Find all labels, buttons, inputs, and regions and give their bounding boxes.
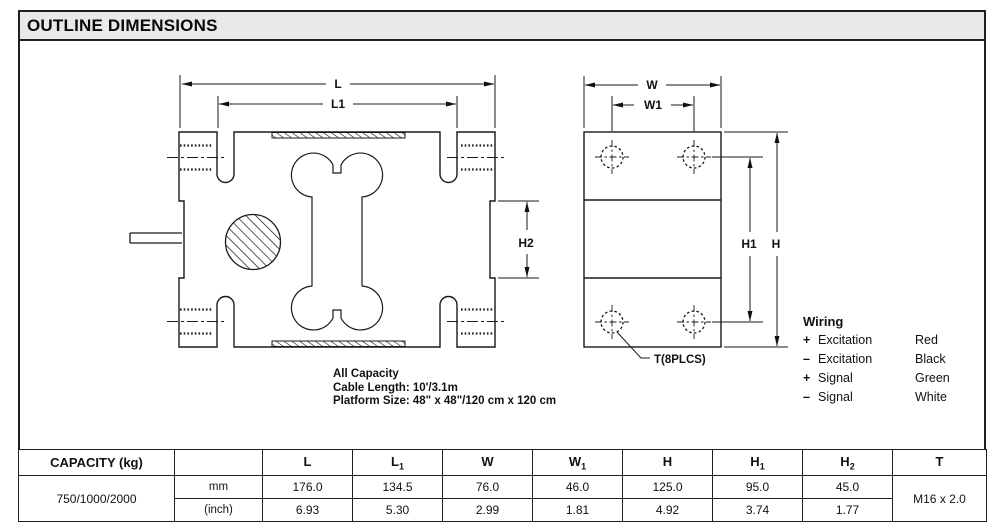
dim-label-L: L (334, 77, 341, 91)
value-cell: 134.5 (353, 476, 443, 499)
capacity-value-cell: 750/1000/2000 (19, 476, 175, 522)
table-row-mm: 750/1000/2000 mm 176.0 134.5 76.0 46.0 1… (19, 476, 987, 499)
col-header-T: T (893, 450, 987, 476)
unit-cell-inch: (inch) (175, 499, 263, 522)
top-hatch-strip (272, 133, 405, 139)
value-cell: 76.0 (443, 476, 533, 499)
wiring-sign: – (803, 350, 818, 369)
cable-entry-circle (226, 215, 281, 270)
wiring-row: – Signal White (803, 388, 950, 407)
value-cell: 46.0 (533, 476, 623, 499)
value-cell: 125.0 (623, 476, 713, 499)
wiring-row: + Excitation Red (803, 331, 950, 350)
bottom-hatch-strip (272, 341, 405, 347)
wiring-name: Signal (818, 388, 915, 407)
wiring-color: Black (915, 350, 946, 369)
wiring-color: White (915, 388, 947, 407)
value-cell: 4.92 (623, 499, 713, 522)
wiring-name: Excitation (818, 331, 915, 350)
dim-label-H: H (772, 237, 781, 251)
dim-label-H1: H1 (741, 237, 757, 251)
value-cell: 95.0 (713, 476, 803, 499)
value-cell: 5.30 (353, 499, 443, 522)
value-cell: 176.0 (263, 476, 353, 499)
thread-callout-label: T(8PLCS) (654, 354, 706, 366)
col-header-L: L (263, 450, 353, 476)
wiring-color: Green (915, 369, 950, 388)
col-header-unit (175, 450, 263, 476)
unit-cell-mm: mm (175, 476, 263, 499)
dim-label-W: W (646, 78, 658, 92)
value-cell: 1.77 (803, 499, 893, 522)
wiring-row: – Excitation Black (803, 350, 950, 369)
note-platform-size: Platform Size: 48" x 48"/120 cm x 120 cm (333, 395, 556, 409)
value-cell: 2.99 (443, 499, 533, 522)
note-all-capacity: All Capacity (333, 368, 556, 382)
value-cell: 1.81 (533, 499, 623, 522)
dimensions-table: CAPACITY (kg) L L1 W W1 H H1 H2 T 750/10… (18, 449, 987, 522)
capacity-notes: All Capacity Cable Length: 10'/3.1m Plat… (333, 368, 556, 409)
dim-label-L1: L1 (331, 97, 345, 111)
value-cell: 3.74 (713, 499, 803, 522)
wiring-row: + Signal Green (803, 369, 950, 388)
side-view (130, 132, 507, 347)
col-header-capacity: CAPACITY (kg) (19, 450, 175, 476)
col-header-W1: W1 (533, 450, 623, 476)
wiring-legend: Wiring + Excitation Red – Excitation Bla… (803, 312, 950, 407)
cable-stub (130, 233, 182, 243)
wiring-name: Excitation (818, 350, 915, 369)
value-cell: 45.0 (803, 476, 893, 499)
dim-label-H2: H2 (518, 236, 534, 250)
note-cable-length: Cable Length: 10'/3.1m (333, 382, 556, 396)
dim-label-W1: W1 (644, 98, 662, 112)
thread-value-cell: M16 x 2.0 (893, 476, 987, 522)
table-header-row: CAPACITY (kg) L L1 W W1 H H1 H2 T (19, 450, 987, 476)
value-cell: 6.93 (263, 499, 353, 522)
col-header-L1: L1 (353, 450, 443, 476)
col-header-H1: H1 (713, 450, 803, 476)
wiring-sign: + (803, 369, 818, 388)
wiring-sign: + (803, 331, 818, 350)
datasheet-page: OUTLINE DIMENSIONS (0, 0, 996, 530)
col-header-H2: H2 (803, 450, 893, 476)
end-view (584, 132, 721, 358)
col-header-W: W (443, 450, 533, 476)
col-header-H: H (623, 450, 713, 476)
wiring-color: Red (915, 331, 938, 350)
wiring-name: Signal (818, 369, 915, 388)
wiring-sign: – (803, 388, 818, 407)
wiring-title: Wiring (803, 312, 950, 331)
